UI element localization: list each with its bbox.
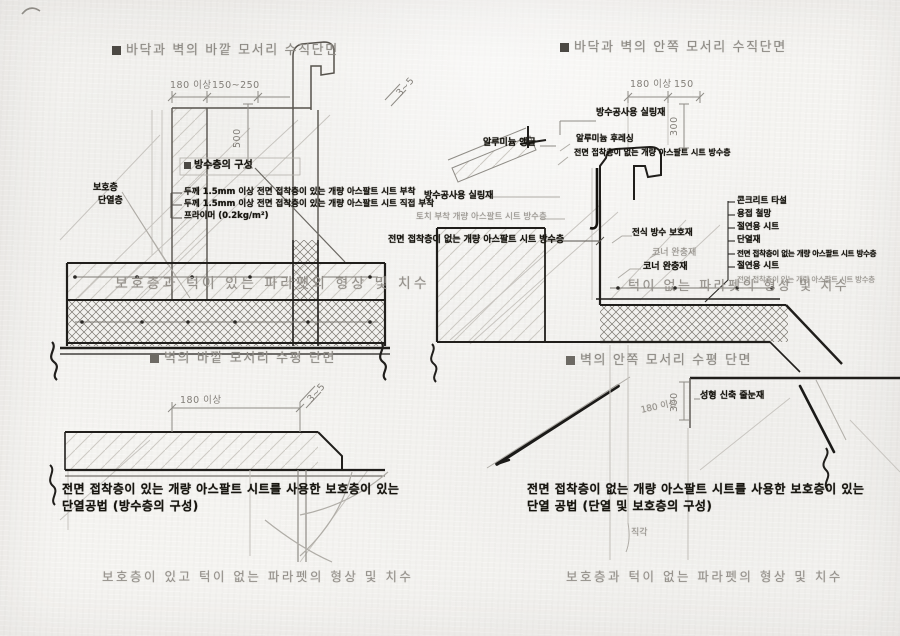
- left-section-title-mid-text: 벽의 바깥 모서리 수평 단면: [164, 351, 336, 366]
- sketch-linework: [0, 0, 900, 636]
- right-label-protection: 전식 방수 보호재: [632, 229, 693, 239]
- left-note-line-2: 단열공법 (방수층의 구성): [62, 500, 199, 514]
- right-label-corner: 코너 완충재: [643, 262, 688, 272]
- drawing-sheet: 바닥과 벽의 바깥 모서리 수직단면 벽의 바깥 모서리 수평 단면 180 이…: [0, 0, 900, 636]
- right-label-sealant-top: 방수공사용 실링재: [596, 108, 665, 118]
- left-section-title-top: 바닥과 벽의 바깥 모서리 수직단면: [112, 44, 339, 59]
- section-marker-icon: [566, 356, 575, 365]
- right-section-title-mid-text: 벽의 안쪽 모서리 수평 단면: [580, 353, 752, 368]
- left-dim-top-b: 150~250: [212, 81, 260, 92]
- right-label-sheet-top: 전면 접착층이 없는 개량 아스팔트 시트 방수층: [574, 148, 731, 157]
- right-ghost-caption-bottom: 보호층과 턱이 없는 파라펫의 형상 및 치수: [566, 570, 843, 584]
- section-marker-icon: [150, 354, 159, 363]
- left-ghost-caption-bottom: 보호층이 있고 턱이 없는 파라펫의 형상 및 치수: [102, 570, 413, 584]
- right-ghost-right-angle: 직각: [631, 528, 648, 538]
- right-label-joint: 성형 신축 줄눈재: [700, 391, 764, 401]
- left-dim-height: 500: [233, 128, 244, 148]
- left-ghost-caption-mid: 보호층과 턱이 있는 파라펫의 형상 및 치수: [115, 276, 430, 292]
- right-ghost-caption-mid: 턱이 없는 파라펫의 형상 및 치수: [628, 280, 849, 295]
- pen-stroke: [497, 386, 618, 464]
- right-layer-item: 절연용 시트: [737, 223, 779, 233]
- flashing-line: [590, 168, 597, 228]
- right-section-title-top: 바닥과 벽의 안쪽 모서리 수직단면: [560, 41, 787, 56]
- break-mark: [431, 344, 436, 382]
- pen-stroke: [800, 386, 834, 452]
- break-mark: [51, 342, 57, 380]
- left-section-title-mid: 벽의 바깥 모서리 수평 단면: [150, 352, 336, 367]
- left-dim-top-a: 180 이상: [170, 81, 212, 92]
- right-label-aluminum-flashing: 알루미늄 후레싱: [576, 135, 634, 145]
- right-section-title-mid: 벽의 안쪽 모서리 수평 단면: [566, 354, 752, 369]
- left-layer-label-2: 단열층: [98, 196, 123, 206]
- corner-scribble: [22, 8, 40, 14]
- right-layer-item: 단열재: [737, 236, 760, 246]
- left-dim-bottom-a: 180 이상: [180, 396, 222, 407]
- left-callout-3: 프라이머 (0.2kg/m²): [184, 212, 269, 222]
- right-label-sealant-mid: 방수공사용 실링재: [424, 191, 493, 201]
- left-callout-1: 두께 1.5mm 이상 전면 접착층이 있는 개량 아스팔트 시트 부착: [184, 188, 415, 198]
- break-mark: [50, 465, 55, 505]
- left-layer-label-1: 보호층: [93, 183, 118, 193]
- right-layer-item: 절연용 시트: [737, 262, 779, 272]
- right-note-line-1: 전면 접착층이 없는 개량 아스팔트 시트를 사용한 보호층이 있는: [527, 483, 864, 497]
- right-label-aluminum-angle: 알루미늄 앵글: [483, 138, 536, 148]
- right-dim-top-b: 150: [674, 80, 694, 91]
- left-section-title-top-text: 바닥과 벽의 바깥 모서리 수직단면: [126, 43, 339, 58]
- right-label-torch-sheet: 토치 부착 개량 아스팔트 시트 방수층: [416, 213, 547, 223]
- section-marker-icon: [560, 43, 569, 52]
- right-note-line-2: 단열 공법 (단열 및 보호층의 구성): [527, 500, 712, 514]
- right-layer-item: 전면 접착층이 없는 개량 아스팔트 시트 방수층: [737, 250, 876, 259]
- left-callout-2: 두께 1.5mm 이상 전면 접착층이 있는 개량 아스팔트 시트 직접 부착: [184, 200, 434, 210]
- right-layer-item: 콘크리트 타설: [737, 197, 787, 207]
- right-dim-top-a: 180 이상: [630, 80, 672, 91]
- right-label-corner-ghost: 코너 완충재: [652, 248, 696, 258]
- section-marker-icon: [112, 46, 121, 55]
- header-marker-icon: [184, 162, 191, 169]
- right-horizontal-section: [610, 345, 900, 560]
- left-waterproof-header-text: 방수층의 구성: [194, 160, 253, 171]
- right-dim-height-top: 300: [670, 116, 681, 136]
- left-horizontal-section: [50, 386, 388, 562]
- right-label-sheet-mid: 전면 접착층이 없는 개량 아스팔트 시트 방수층: [388, 235, 564, 245]
- right-layer-item: 용접 철망: [737, 210, 771, 220]
- left-waterproof-header: 방수층의 구성: [184, 160, 253, 172]
- left-note-line-1: 전면 접착층이 있는 개량 아스팔트 시트를 사용한 보호층이 있는: [62, 483, 399, 497]
- right-section-title-top-text: 바닥과 벽의 안쪽 모서리 수직단면: [574, 40, 787, 55]
